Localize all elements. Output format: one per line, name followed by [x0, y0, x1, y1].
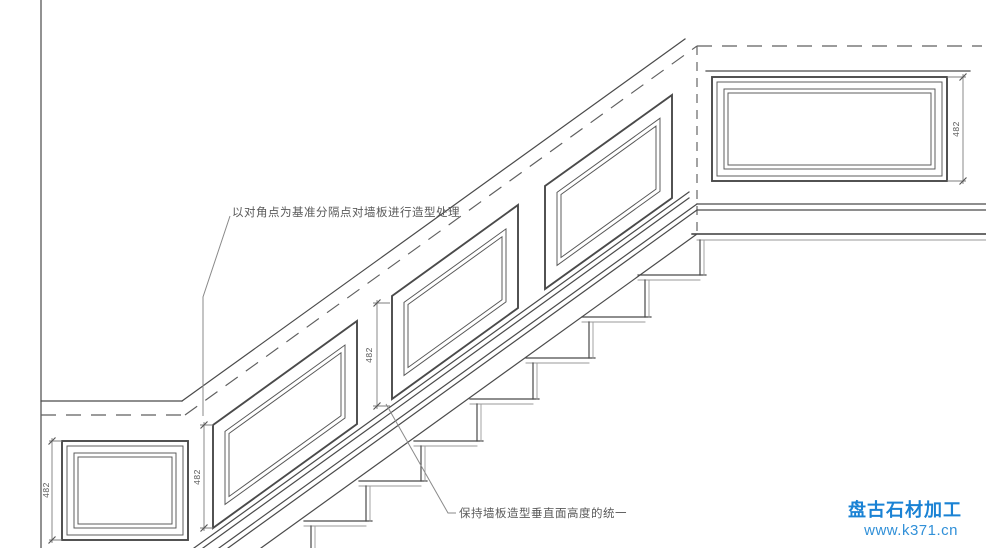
stair-wainscot-elevation-drawing: 482 482 482 482 以对角点为基准分隔点对墙板进行造型处理 保持墙板… [0, 0, 986, 548]
watermark-site: www.k371.cn [863, 522, 958, 539]
dimension-value: 482 [192, 469, 202, 485]
dimension-value: 482 [41, 482, 51, 498]
annotation-text: 保持墙板造型垂直面高度的统一 [459, 506, 627, 520]
watermark: 盘古石材加工 www.k371.cn [848, 499, 962, 539]
dimension-value: 482 [364, 347, 374, 363]
annotation-text: 以对角点为基准分隔点对墙板进行造型处理 [232, 205, 460, 219]
watermark-brand: 盘古石材加工 [848, 499, 962, 520]
dimension-value: 482 [951, 121, 961, 137]
